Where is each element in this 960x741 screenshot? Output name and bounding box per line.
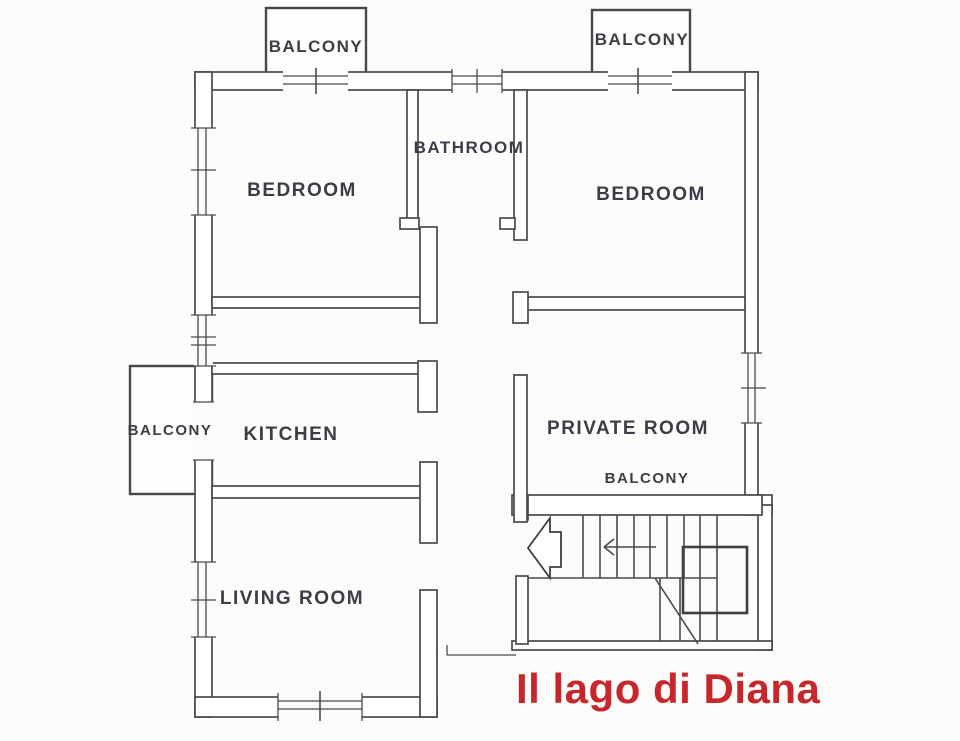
room-label-balcony-top-right: BALCONY	[595, 30, 690, 49]
room-label-private-room: PRIVATE ROOM	[547, 418, 709, 439]
plan-title: Il lago di Diana	[516, 665, 821, 712]
room-label-living-room: LIVING ROOM	[220, 588, 364, 609]
room-label-bedroom-left: BEDROOM	[247, 180, 357, 201]
room-label-bedroom-right: BEDROOM	[596, 184, 706, 205]
floor-plan-page: BALCONY BALCONY BATHROOM BEDROOM BEDROOM…	[0, 0, 960, 741]
room-label-bathroom: BATHROOM	[414, 138, 525, 157]
room-label-kitchen: KITCHEN	[244, 424, 339, 445]
room-label-balcony-left: BALCONY	[128, 422, 213, 439]
room-label-private-balcony: BALCONY	[605, 470, 690, 487]
floor-plan-canvas: BALCONY BALCONY BATHROOM BEDROOM BEDROOM…	[0, 0, 960, 741]
room-label-balcony-top-left: BALCONY	[269, 37, 364, 56]
